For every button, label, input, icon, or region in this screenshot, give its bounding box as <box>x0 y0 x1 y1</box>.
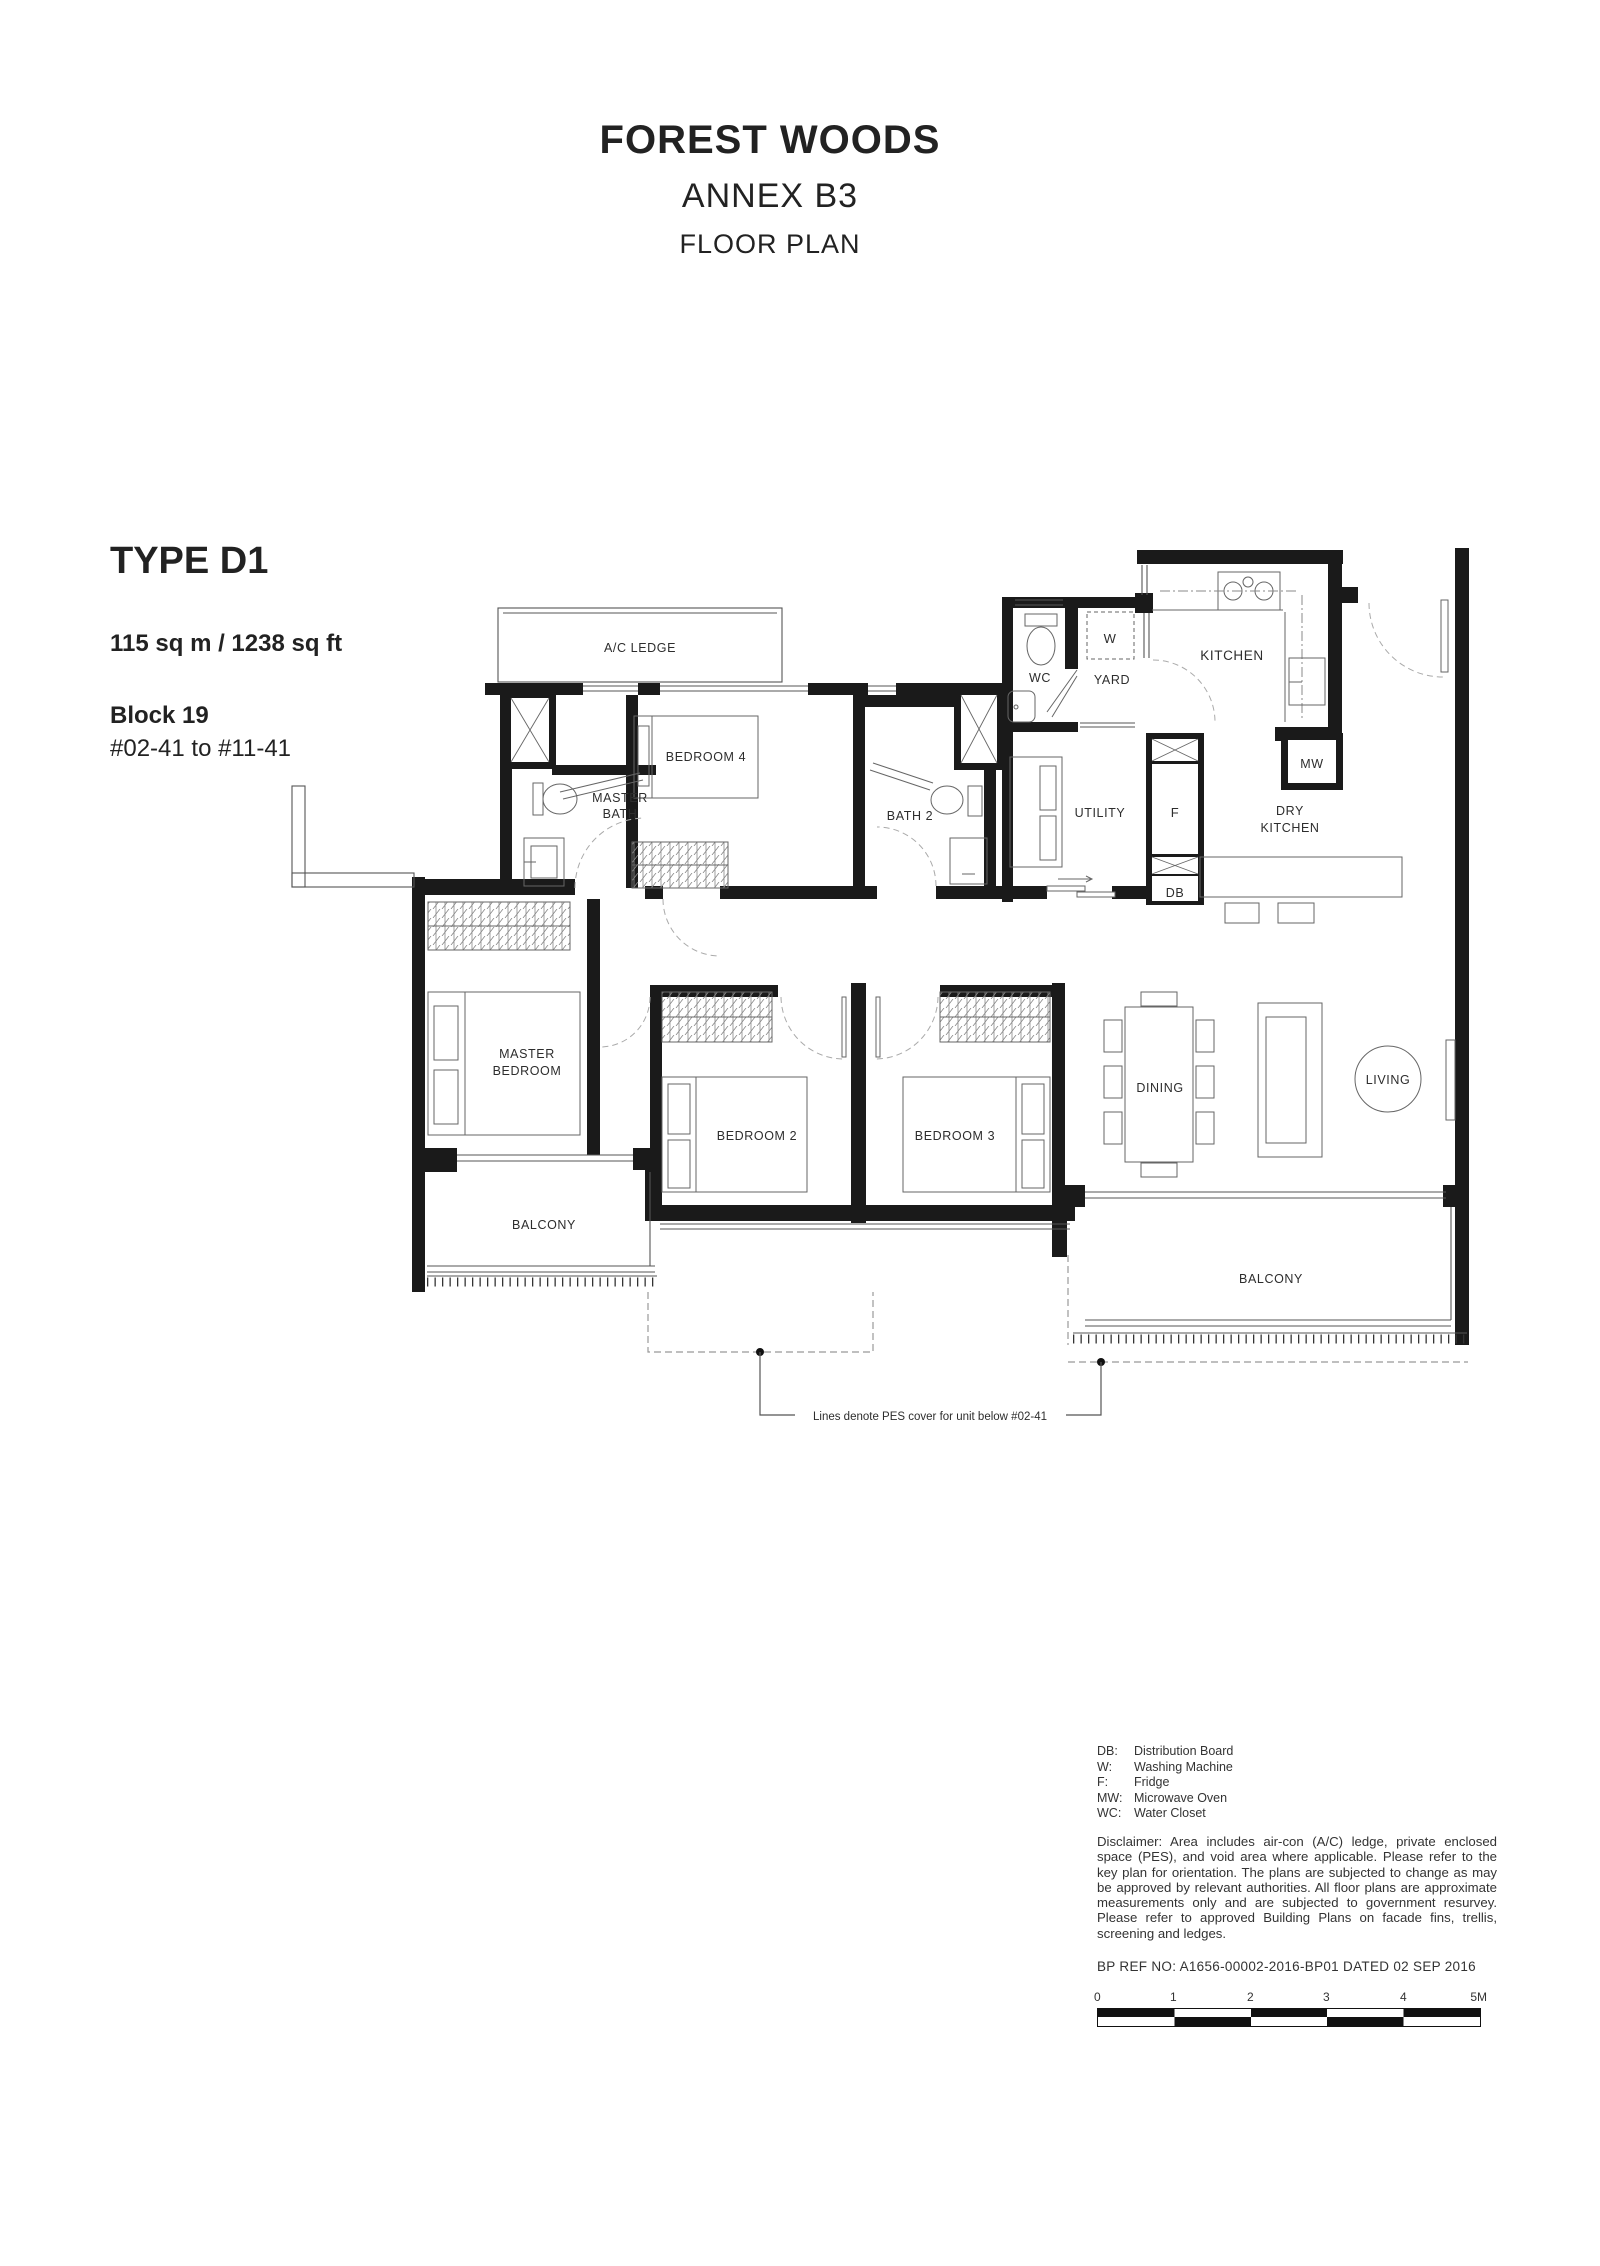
legend-label: Distribution Board <box>1134 1744 1233 1760</box>
legend-abbr: DB: <box>1097 1744 1134 1760</box>
counter-icon <box>1200 857 1402 923</box>
label-master-bedroom-1: MASTER <box>499 1047 555 1061</box>
vanity-icon <box>950 838 987 884</box>
toilet-icon <box>1025 614 1057 665</box>
legend-label: Fridge <box>1134 1775 1169 1791</box>
scale-tick: 0 <box>1094 1990 1101 2004</box>
label-dry-kitchen-1: DRY <box>1276 804 1304 818</box>
legend-abbr: WC: <box>1097 1806 1134 1822</box>
label-washer: W <box>1104 631 1117 646</box>
legend-label: Washing Machine <box>1134 1760 1233 1776</box>
label-master-bedroom-2: BEDROOM <box>493 1064 562 1078</box>
toilet-icon <box>931 786 982 816</box>
balcony-hatch <box>427 1282 1467 1339</box>
scale-tick: 5M <box>1470 1990 1487 2004</box>
label-dry-kitchen-2: KITCHEN <box>1260 821 1319 835</box>
vanity-icon <box>524 838 564 886</box>
label-microwave: MW <box>1300 757 1323 771</box>
sofa-icon <box>1258 1003 1322 1157</box>
scale-tick: 4 <box>1400 1990 1407 2004</box>
legend-row: DB: Distribution Board <box>1097 1744 1233 1760</box>
legend-label: Microwave Oven <box>1134 1791 1227 1807</box>
furniture <box>428 572 1455 1192</box>
scale-tick: 1 <box>1170 1990 1177 2004</box>
legend-label: Water Closet <box>1134 1806 1206 1822</box>
floor-plan-page: FOREST WOODS ANNEX B3 FLOOR PLAN TYPE D1… <box>0 0 1600 2266</box>
label-master-bath-1: MASTER <box>592 791 648 805</box>
label-kitchen: KITCHEN <box>1200 648 1263 663</box>
legend-row: F: Fridge <box>1097 1775 1233 1791</box>
utility-bench-icon <box>1010 757 1062 867</box>
label-bedroom4: BEDROOM 4 <box>666 750 746 764</box>
bp-ref: BP REF NO: A1656-00002-2016-BP01 DATED 0… <box>1097 1959 1476 1974</box>
scale-bar: 0 1 2 3 4 5M <box>1097 1990 1481 2030</box>
label-balcony-right: BALCONY <box>1239 1272 1303 1286</box>
wardrobe-icon <box>428 842 1050 1042</box>
scale-tick: 2 <box>1247 1990 1254 2004</box>
legend-abbr: MW: <box>1097 1791 1134 1807</box>
label-balcony-left: BALCONY <box>512 1218 576 1232</box>
pes-outline: Lines denote PES cover for unit below #0… <box>648 1255 1468 1423</box>
label-master-bath-2: BATH <box>603 807 638 821</box>
legend-row: W: Washing Machine <box>1097 1760 1233 1776</box>
title-block: FOREST WOODS ANNEX B3 FLOOR PLAN <box>0 118 1540 260</box>
scale-tick: 3 <box>1323 1990 1330 2004</box>
label-ac-ledge: A/C LEDGE <box>604 641 676 655</box>
label-wc: WC <box>1029 671 1051 685</box>
disclaimer-text: Disclaimer: Area includes air-con (A/C) … <box>1097 1834 1497 1941</box>
door-leaf <box>842 600 1448 1057</box>
annex-title: ANNEX B3 <box>0 177 1540 216</box>
project-title: FOREST WOODS <box>0 118 1540 163</box>
label-utility: UTILITY <box>1075 806 1126 820</box>
label-living: LIVING <box>1366 1073 1411 1087</box>
label-bath2: BATH 2 <box>887 809 933 823</box>
scale-bar-bottom <box>1097 2017 1481 2027</box>
label-yard: YARD <box>1094 673 1130 687</box>
shower-screen <box>870 763 933 790</box>
label-db: DB <box>1166 886 1185 900</box>
pes-note: Lines denote PES cover for unit below #0… <box>813 1411 1047 1423</box>
doc-title: FLOOR PLAN <box>0 229 1540 260</box>
label-fridge: F <box>1171 805 1180 820</box>
sliding-door-icon <box>1047 876 1115 897</box>
floor-plan-drawing: Lines denote PES cover for unit below #0… <box>280 530 1500 1460</box>
toilet-icon <box>533 783 577 815</box>
label-bedroom3: BEDROOM 3 <box>915 1129 995 1143</box>
legend-row: WC: Water Closet <box>1097 1806 1233 1822</box>
legend: DB: Distribution Board W: Washing Machin… <box>1097 1744 1233 1822</box>
legend-abbr: W: <box>1097 1760 1134 1776</box>
console-icon <box>1446 1040 1455 1120</box>
legend-abbr: F: <box>1097 1775 1134 1791</box>
wc-door-leaf <box>1047 670 1077 717</box>
label-dining: DINING <box>1136 1081 1183 1095</box>
legend-row: MW: Microwave Oven <box>1097 1791 1233 1807</box>
label-bedroom2: BEDROOM 2 <box>717 1129 797 1143</box>
